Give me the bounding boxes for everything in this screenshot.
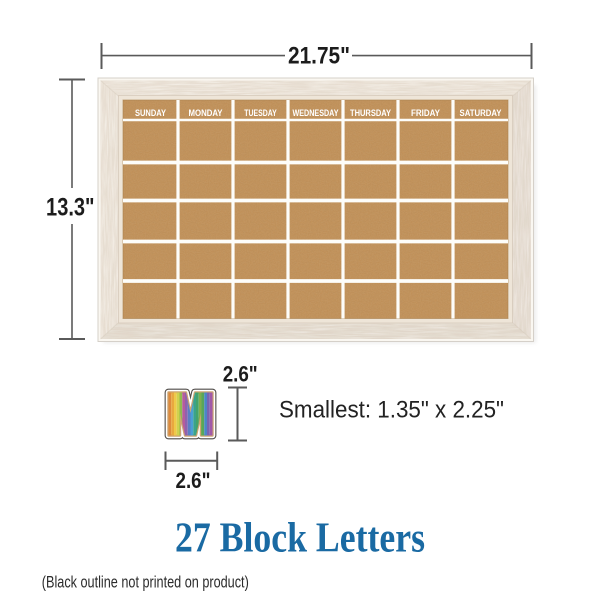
svg-text:MONDAY: MONDAY [189,108,223,119]
svg-text:FRIDAY: FRIDAY [411,108,440,119]
svg-text:THURSDAY: THURSDAY [350,108,391,119]
svg-text:2.6": 2.6" [176,468,211,493]
svg-text:SATURDAY: SATURDAY [460,108,502,119]
svg-text:(Black outline not printed on: (Black outline not printed on product) [42,573,249,592]
svg-text:Smallest: 1.35" x 2.25": Smallest: 1.35" x 2.25" [279,397,504,424]
svg-text:WEDNESDAY: WEDNESDAY [293,108,339,119]
svg-text:21.75": 21.75" [288,42,350,69]
svg-text:TUESDAY: TUESDAY [244,108,277,119]
svg-text:27 Block Letters: 27 Block Letters [175,516,425,562]
svg-text:13.3": 13.3" [46,194,95,222]
svg-text:SUNDAY: SUNDAY [135,108,166,119]
svg-text:2.6": 2.6" [223,361,258,386]
